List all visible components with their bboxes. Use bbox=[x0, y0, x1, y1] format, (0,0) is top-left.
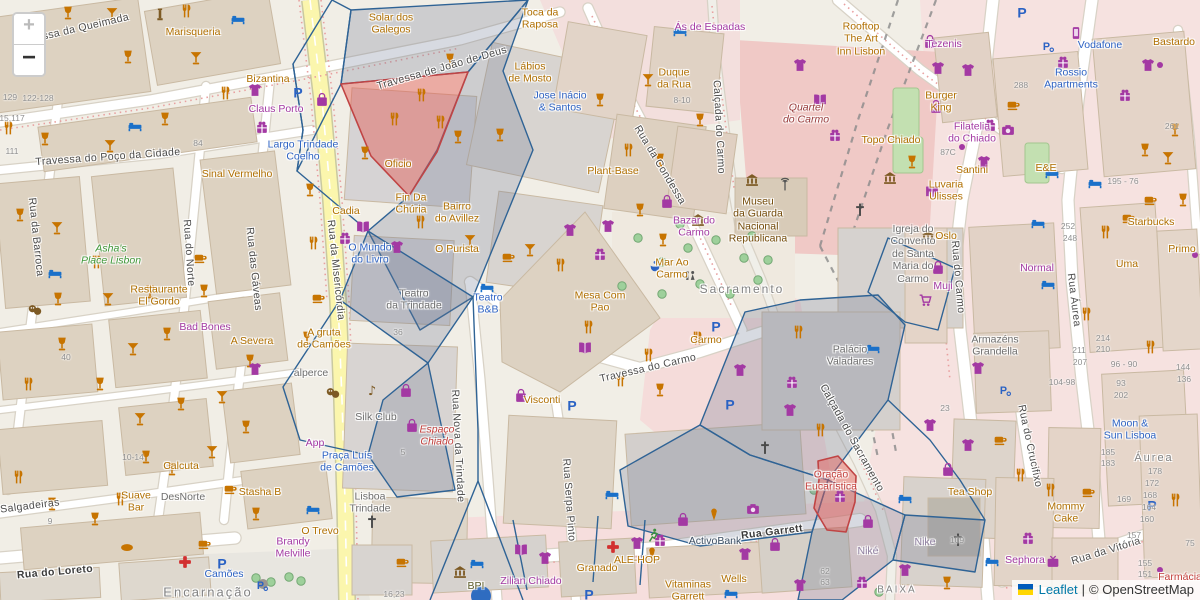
zoom-out-button[interactable]: − bbox=[14, 45, 44, 75]
zoom-control: + − bbox=[12, 12, 46, 77]
map-tiles-layer bbox=[0, 0, 1200, 600]
leaflet-attribution-link[interactable]: Leaflet bbox=[1039, 582, 1078, 597]
osm-attribution-link[interactable]: © OpenStreetMap bbox=[1089, 582, 1194, 597]
attribution-bar: Leaflet | © OpenStreetMap bbox=[1012, 580, 1200, 600]
map-canvas[interactable]: PPP♪PPPPPPPPTravessa da QueimadaTravessa… bbox=[0, 0, 1200, 600]
attribution-separator: | bbox=[1082, 582, 1085, 597]
ukraine-flag-icon bbox=[1018, 584, 1033, 595]
zoom-in-button[interactable]: + bbox=[14, 14, 44, 45]
